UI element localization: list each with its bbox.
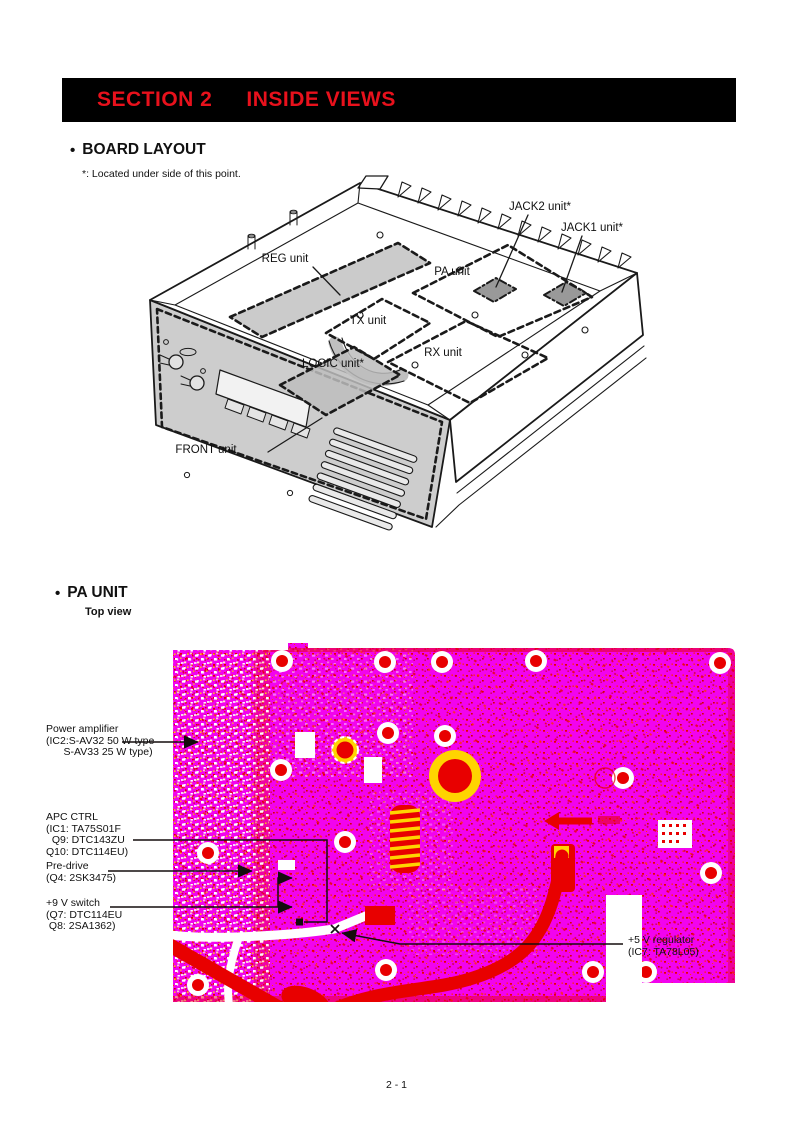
nine-v-switch-leader-upper (278, 878, 292, 907)
unit-label-front: FRONT unit (175, 444, 236, 456)
callout-power-amplifier: Power amplifier (IC2:S-AV32 50 W type S-… (46, 724, 154, 759)
pa-photo-figure: Power amplifier (IC2:S-AV32 50 W type S-… (40, 640, 780, 1030)
unit-label-logic: LOGIC unit* (302, 358, 364, 370)
pa-unit-title: PA UNIT (67, 584, 127, 602)
section-header-bar: SECTION 2 INSIDE VIEWS (62, 78, 736, 122)
section-title: INSIDE VIEWS (246, 88, 396, 112)
chassis-diagram: REG unit PA unit TX unit RX unit LOGIC u… (130, 175, 660, 535)
pa-unit-heading: • PA UNIT (55, 584, 128, 602)
unit-label-pa: PA unit (434, 266, 470, 278)
bullet-icon: • (55, 585, 60, 602)
unit-label-jack1: JACK1 unit* (561, 222, 623, 234)
manual-page: SECTION 2 INSIDE VIEWS • BOARD LAYOUT *:… (0, 0, 793, 1122)
unit-label-reg: REG unit (262, 253, 309, 265)
section-number: SECTION 2 (97, 88, 212, 112)
unit-label-jack2: JACK2 unit* (509, 201, 571, 213)
five-v-regulator-leader (342, 933, 623, 944)
unit-label-tx: TX unit (350, 315, 386, 327)
apc-ctrl-endpoint (296, 919, 303, 926)
callout-five-v-regulator: +5 V regulator (IC7: TA78L05) (628, 935, 699, 958)
unit-label-rx: RX unit (424, 347, 462, 359)
top-view-label: Top view (85, 606, 131, 618)
board-layout-heading: • BOARD LAYOUT (70, 141, 206, 159)
callout-apc-ctrl: APC CTRL (IC1: TA75S01F Q9: DTC143ZU Q10… (46, 812, 128, 858)
callout-leaders (40, 640, 780, 1030)
board-layout-title: BOARD LAYOUT (82, 141, 205, 159)
page-number: 2 - 1 (0, 1079, 793, 1091)
callout-nine-v-switch: +9 V switch (Q7: DTC114EU Q8: 2SA1362) (46, 898, 122, 933)
rear-bracket-tab (358, 176, 388, 189)
apc-ctrl-leader (133, 840, 327, 922)
callout-pre-drive: Pre-drive (Q4: 2SK3475) (46, 861, 116, 884)
bullet-icon: • (70, 142, 75, 159)
